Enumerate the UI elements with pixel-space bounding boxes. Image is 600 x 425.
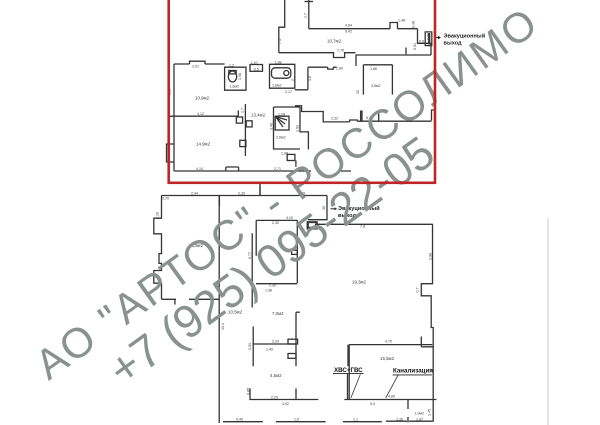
svg-text:1,98: 1,98: [275, 60, 282, 64]
svg-text:7,0м2: 7,0м2: [272, 311, 284, 316]
svg-text:0,70: 0,70: [162, 197, 169, 201]
svg-text:1,28: 1,28: [278, 112, 285, 116]
svg-text:2: 2: [291, 79, 295, 81]
svg-text:2,29: 2,29: [271, 395, 278, 399]
svg-text:7,70: 7,70: [337, 48, 344, 52]
svg-text:2,29: 2,29: [272, 340, 279, 344]
svg-text:1,2: 1,2: [229, 63, 234, 67]
svg-text:1,7: 1,7: [241, 108, 245, 113]
svg-text:1,6м2: 1,6м2: [272, 84, 281, 88]
svg-text:1,10: 1,10: [251, 61, 258, 65]
svg-text:4,12: 4,12: [197, 112, 204, 116]
svg-text:2,60: 2,60: [336, 67, 343, 71]
svg-text:1,91: 1,91: [295, 125, 299, 132]
svg-text:0,94: 0,94: [413, 43, 417, 50]
svg-text:2,6м2: 2,6м2: [276, 136, 285, 140]
svg-text:1,98: 1,98: [281, 152, 288, 156]
svg-text:1,45: 1,45: [428, 409, 432, 416]
svg-text:4,10: 4,10: [196, 167, 203, 171]
svg-text:0,48: 0,48: [412, 21, 416, 28]
svg-text:0,85: 0,85: [247, 388, 251, 395]
svg-text:4,80: 4,80: [388, 395, 395, 399]
svg-text:3,96: 3,96: [429, 253, 433, 260]
svg-text:1,7: 1,7: [304, 13, 308, 18]
svg-text:0,7: 0,7: [416, 288, 420, 293]
svg-text:10,9м2: 10,9м2: [195, 96, 210, 101]
svg-text:3,40: 3,40: [270, 123, 274, 130]
svg-text:0,9: 0,9: [419, 39, 424, 43]
svg-text:1,98: 1,98: [238, 73, 242, 80]
svg-text:1,86: 1,86: [370, 67, 377, 71]
svg-text:4,92: 4,92: [282, 402, 289, 406]
svg-text:3,16: 3,16: [156, 212, 160, 219]
svg-text:0,98: 0,98: [427, 33, 431, 40]
svg-text:1,9м2: 1,9м2: [415, 412, 424, 416]
svg-text:1,1: 1,1: [353, 418, 358, 422]
svg-text:3,91: 3,91: [248, 343, 252, 350]
svg-text:19,3м2: 19,3м2: [352, 280, 367, 285]
svg-text:1,97: 1,97: [416, 418, 423, 422]
svg-text:4,70: 4,70: [385, 340, 392, 344]
svg-text:1,48: 1,48: [398, 18, 405, 22]
svg-text:0,5: 0,5: [254, 67, 259, 71]
svg-text:9,42: 9,42: [345, 29, 352, 33]
svg-text:1,5: 1,5: [294, 418, 299, 422]
svg-text:3,5м2: 3,5м2: [371, 84, 380, 88]
svg-text:2,32: 2,32: [331, 116, 338, 120]
svg-text:13,4м2: 13,4м2: [251, 112, 266, 117]
svg-text:4,5м2: 4,5м2: [270, 373, 282, 378]
svg-text:2,94: 2,94: [191, 191, 198, 195]
svg-text:Канализация: Канализация: [393, 368, 433, 375]
svg-text:2,17: 2,17: [285, 90, 292, 94]
svg-text:15,5м2: 15,5м2: [380, 356, 395, 361]
svg-text:1,30: 1,30: [396, 418, 403, 422]
svg-text:1,40: 1,40: [266, 348, 273, 352]
svg-text:5,0: 5,0: [370, 402, 375, 406]
svg-text:2,01: 2,01: [192, 65, 199, 69]
svg-text:1,6: 1,6: [308, 76, 312, 81]
svg-text:7,1: 7,1: [278, 39, 282, 44]
svg-text:1,6м2: 1,6м2: [230, 84, 239, 88]
svg-text:0,40: 0,40: [236, 418, 243, 422]
svg-text:10,7м2: 10,7м2: [327, 38, 342, 43]
svg-text:30: 30: [356, 90, 360, 94]
svg-text:14,9м2: 14,9м2: [196, 142, 211, 147]
svg-text:4,84: 4,84: [345, 23, 352, 27]
